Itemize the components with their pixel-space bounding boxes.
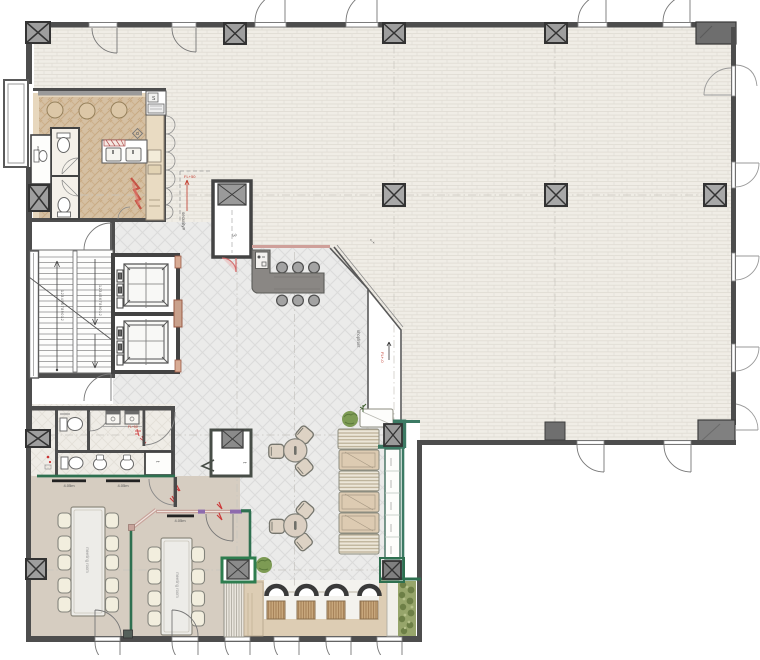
- svg-text:123456789012: 123456789012: [60, 290, 64, 321]
- svg-text:shopfront: shopfront: [356, 330, 361, 348]
- svg-text:FL+50: FL+50: [128, 425, 138, 429]
- svg-text:4.05m: 4.05m: [174, 518, 186, 523]
- svg-text:FL+-0: FL+-0: [380, 352, 385, 363]
- svg-text:meeting room: meeting room: [85, 547, 90, 573]
- svg-text:123456789012: 123456789012: [98, 285, 102, 316]
- svg-text:FL+50: FL+50: [184, 174, 196, 179]
- svg-text:wc: wc: [36, 146, 41, 151]
- svg-text:meeting room: meeting room: [175, 572, 180, 598]
- svg-text:4.05m: 4.05m: [117, 483, 129, 488]
- svg-text:security#: security#: [181, 212, 186, 231]
- svg-text:4.05m: 4.05m: [63, 483, 75, 488]
